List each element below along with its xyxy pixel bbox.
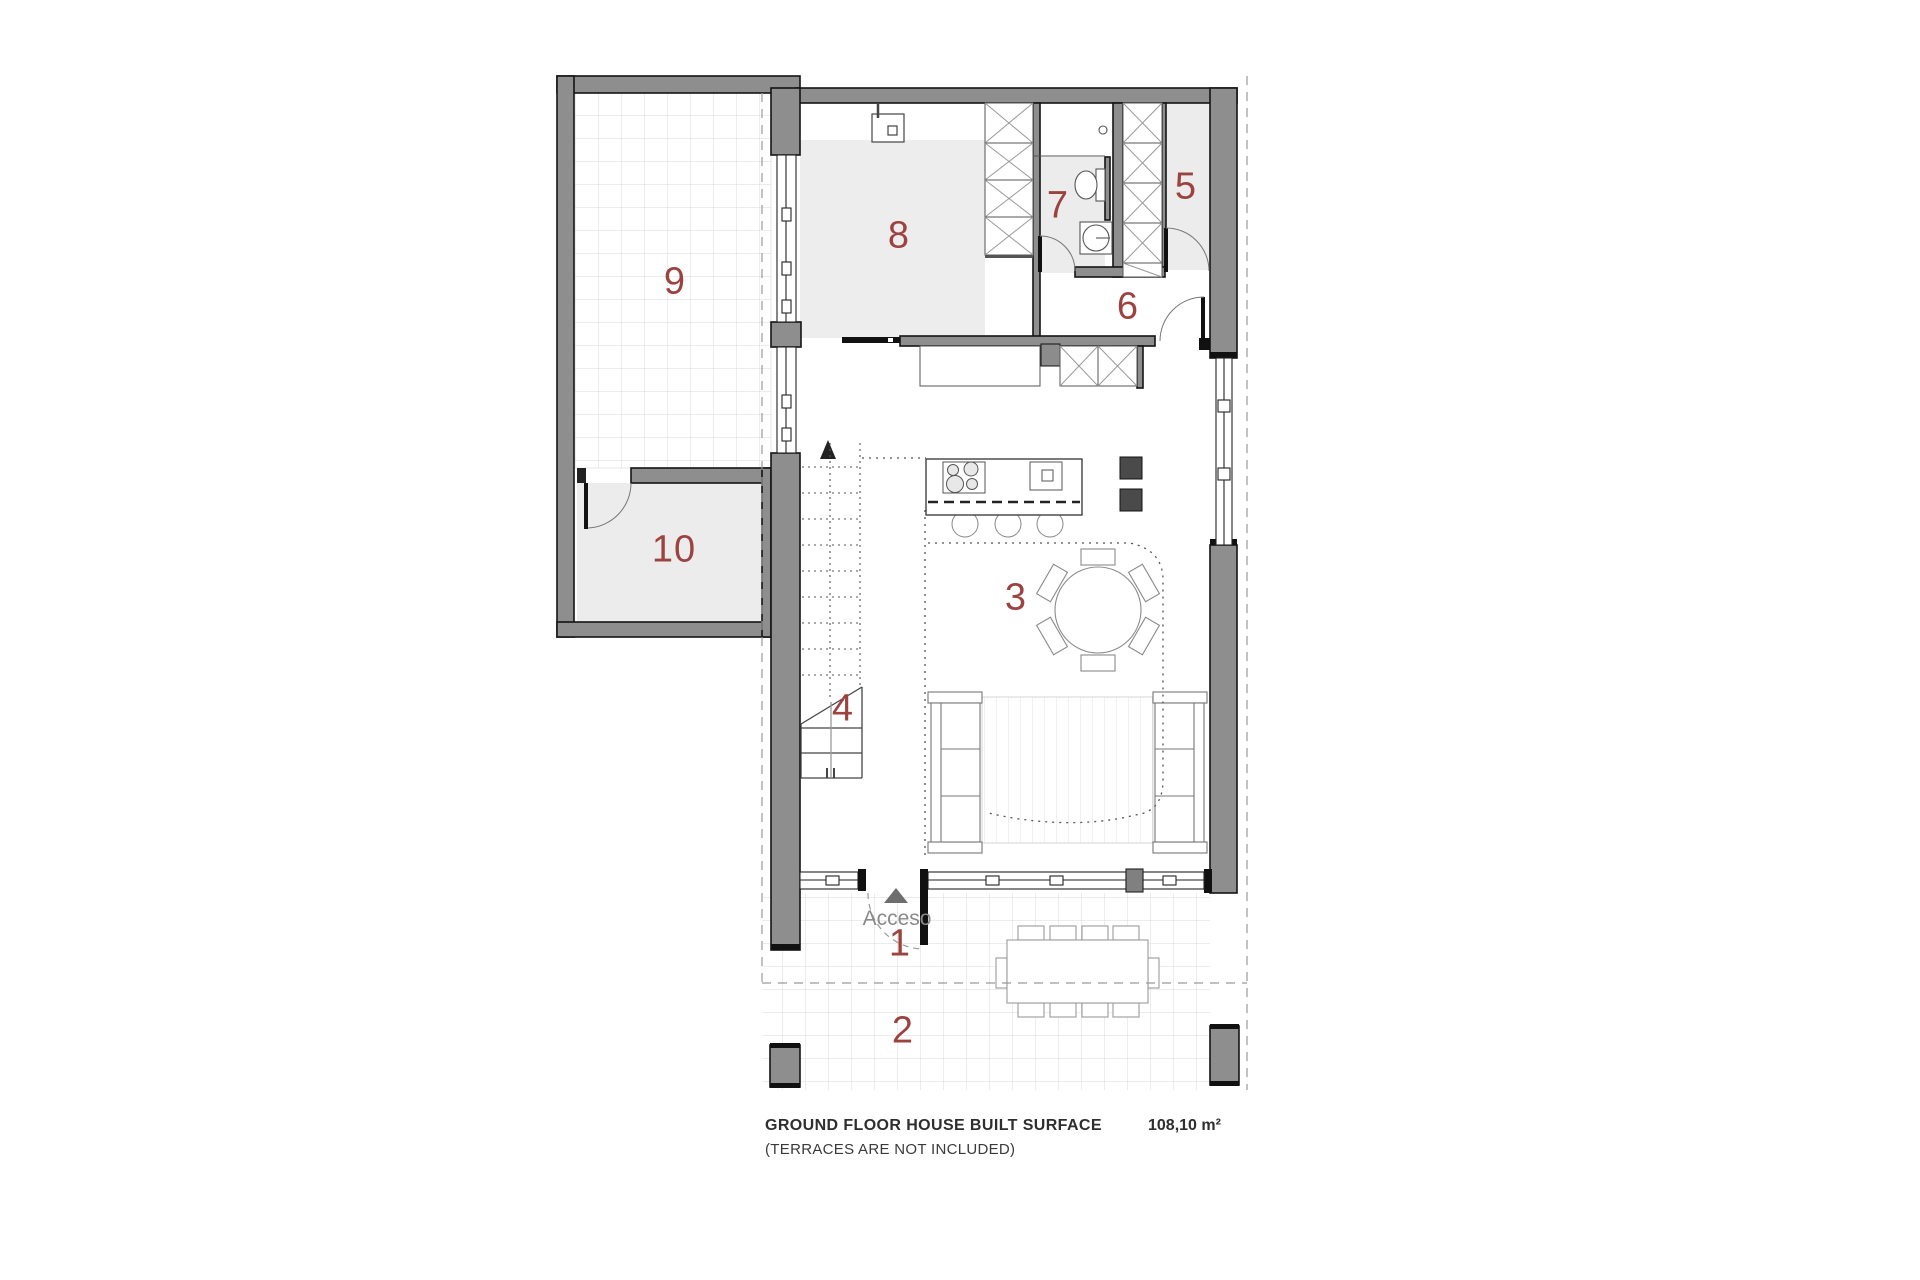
floor-plan-drawing: [0, 0, 1920, 1280]
column-block: [1120, 457, 1142, 479]
caption-block: GROUND FLOOR HOUSE BUILT SURFACE (TERRAC…: [765, 1117, 1102, 1158]
chair: [1018, 926, 1044, 940]
room-label-5: 5: [1175, 166, 1197, 209]
kitchen-island-group: [926, 457, 1142, 537]
wall-room10-right: [762, 468, 771, 637]
kitchen-tall-cabinets: [985, 103, 1033, 255]
door-leaf-room5: [1164, 228, 1168, 272]
sofa-right: [1153, 692, 1207, 853]
caption-area-value: 108,10 m²: [1148, 1117, 1221, 1135]
access-label: Acceso: [863, 907, 932, 931]
room-label-3: 3: [1005, 577, 1027, 620]
counter-column: [1041, 344, 1060, 366]
wall-toilet-partition: [1105, 157, 1110, 220]
door-leaf-room7: [1038, 236, 1042, 272]
chair: [1081, 655, 1115, 671]
round-dining-table: [1055, 567, 1141, 653]
chair: [1050, 926, 1076, 940]
pillar-bottom-right: [1210, 1026, 1239, 1085]
room-label-2: 2: [892, 1010, 914, 1053]
room-label-6: 6: [1117, 286, 1139, 329]
wall-main-top: [796, 88, 1237, 103]
wall-counter-post: [1137, 346, 1143, 388]
floor-plan-page: 1 2 3 4 5 6 7 8 9 10 Acceso GROUND FLOOR…: [0, 0, 1920, 1280]
chair: [1082, 926, 1108, 940]
chair: [1113, 1003, 1139, 1017]
living-room-furniture: [928, 692, 1207, 853]
window-mullion-post: [1126, 869, 1143, 892]
door-leaf-room6: [1201, 297, 1205, 341]
door-post-room10: [577, 468, 586, 483]
wall-room10-bottom: [557, 622, 771, 637]
wall-column-main: [771, 453, 800, 950]
chair: [1082, 1003, 1108, 1017]
chair: [1018, 1003, 1044, 1017]
outdoor-table: [1007, 940, 1148, 1003]
door-leaf-room10: [584, 483, 588, 529]
wall-wardrobe-left: [1113, 103, 1123, 277]
dining-table-group: [1037, 549, 1160, 671]
counter-appliances: [920, 344, 1137, 386]
wardrobe-room5: [1123, 103, 1162, 277]
door-arc-room6: [1160, 297, 1204, 341]
wall-left-outer: [557, 76, 574, 637]
outdoor-dining-set: [996, 926, 1159, 1017]
chair: [1081, 549, 1115, 565]
wall-room10-top: [631, 468, 771, 483]
pillar-bottom-left: [770, 1045, 800, 1087]
stairs-up-arrow-icon: [820, 440, 836, 459]
room-label-9: 9: [664, 261, 686, 304]
wall-column-top: [771, 88, 800, 155]
wall-counter: [900, 336, 1155, 346]
room-label-10: 10: [652, 529, 696, 572]
entrance-door-post: [858, 869, 866, 891]
drain-symbol: [1099, 126, 1107, 134]
sofa-left: [928, 692, 982, 853]
caption-title: GROUND FLOOR HOUSE BUILT SURFACE: [765, 1117, 1102, 1135]
toilet-bowl: [1075, 171, 1097, 199]
wall-terrace-top: [557, 76, 800, 93]
wall-kitchen-bath: [1033, 103, 1040, 346]
chair: [1050, 1003, 1076, 1017]
chair: [1113, 926, 1139, 940]
room-label-8: 8: [888, 215, 910, 258]
room-label-4: 4: [832, 688, 854, 731]
counter: [920, 346, 1040, 386]
caption-note: (TERRACES ARE NOT INCLUDED): [765, 1141, 1102, 1158]
wall-right-top: [1210, 88, 1237, 358]
room-label-7: 7: [1047, 185, 1069, 228]
kitchen-wall-basin: [872, 103, 904, 142]
column-block: [1120, 489, 1142, 511]
rug: [982, 697, 1153, 843]
wall-right-bottom: [1210, 545, 1237, 893]
wall-column-mid: [771, 322, 801, 347]
